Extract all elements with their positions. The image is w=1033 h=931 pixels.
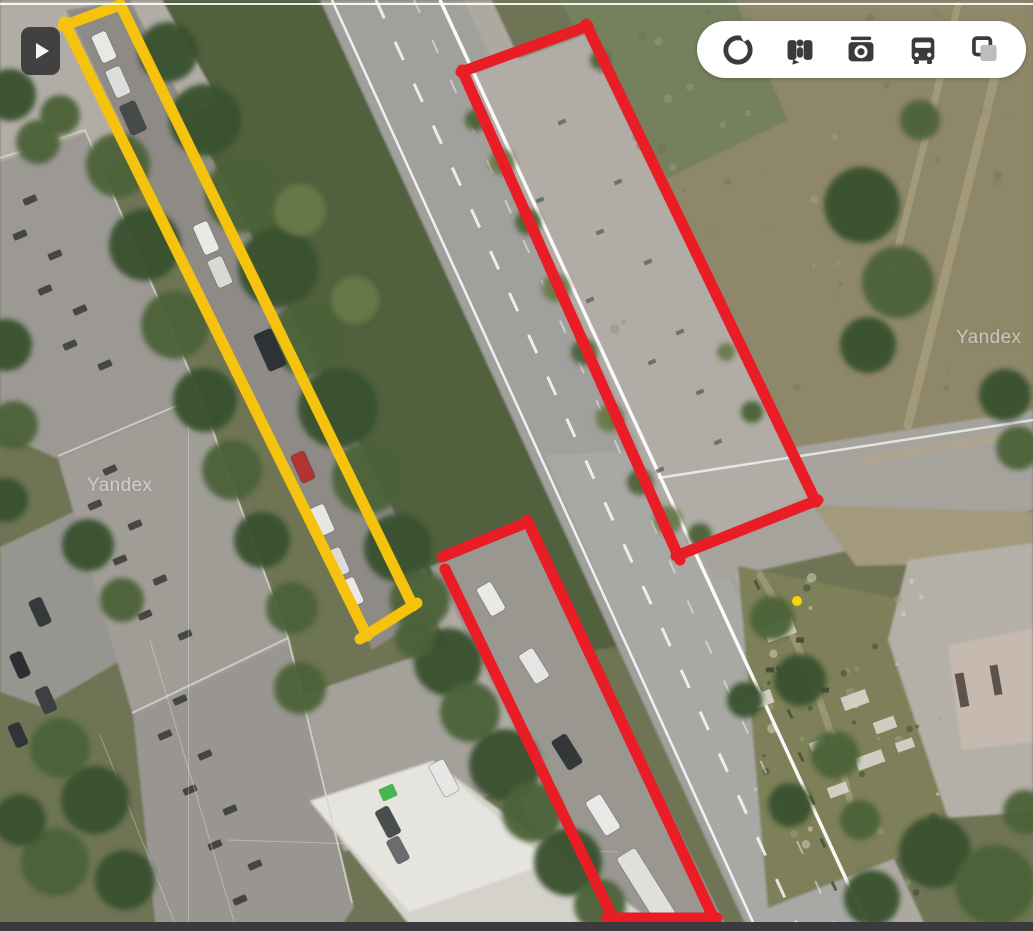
yellow-dot-marker [792,596,802,606]
yandex-watermark: Yandex [956,327,1021,349]
bottom-bar [0,922,1033,931]
tile-seam [188,427,189,922]
expand-panel-button[interactable] [21,27,60,75]
panorama-ring-icon[interactable] [720,32,756,68]
layers-icon[interactable] [967,32,1003,68]
satellite-imagery[interactable] [0,0,1033,931]
map-canvas[interactable]: YandexYandex [0,0,1033,931]
photos-camera-icon[interactable] [843,32,879,68]
transport-bus-icon[interactable] [905,32,941,68]
map-toolbar [697,21,1026,78]
play-icon [34,42,50,60]
street-view-icon[interactable] [782,32,818,68]
top-edge-line [0,3,1033,5]
yandex-watermark: Yandex [87,475,152,497]
